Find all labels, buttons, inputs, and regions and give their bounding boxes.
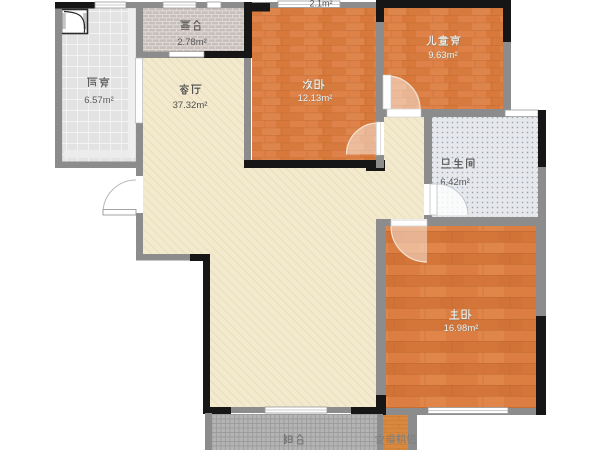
svg-text:9.63m²: 9.63m² <box>428 50 458 61</box>
svg-text:12.13m²: 12.13m² <box>298 93 333 104</box>
svg-text:37.32m²: 37.32m² <box>173 100 208 111</box>
svg-text:2.78m²: 2.78m² <box>177 37 207 48</box>
svg-text:16.98m²: 16.98m² <box>444 323 479 334</box>
svg-text:6.57m²: 6.57m² <box>84 95 114 106</box>
svg-text:2.1m²: 2.1m² <box>309 0 332 9</box>
